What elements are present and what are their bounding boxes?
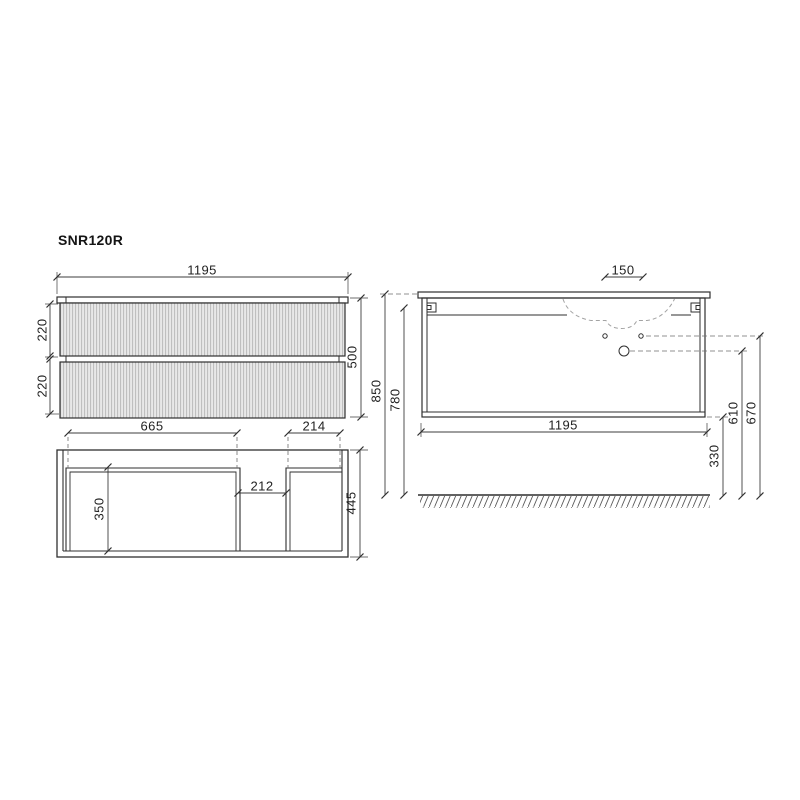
- front-view: [57, 297, 348, 418]
- side-countertop: [418, 292, 710, 298]
- dim-plan-inner-depth: 350: [93, 498, 106, 521]
- dim-front-height: 500: [346, 346, 359, 369]
- dim-front-bottom-drawer: 220: [36, 375, 49, 398]
- dim-front-width: 1195: [187, 264, 217, 277]
- drain-hole: [619, 346, 629, 356]
- mounting-bracket-right: [691, 303, 700, 312]
- side-view: [418, 292, 710, 508]
- dim-side-drain-height: 610: [727, 402, 740, 425]
- supply-hole-left: [603, 334, 607, 338]
- supply-hole-right: [639, 334, 643, 338]
- dim-plan-gap: 212: [251, 480, 274, 493]
- model-label: SNR120R: [58, 232, 123, 248]
- dim-side-tap-spacing: 150: [612, 264, 635, 277]
- dim-side-supply-height: 670: [745, 402, 758, 425]
- dim-side-cabinet-height: 780: [389, 389, 402, 412]
- technical-drawing: SNR120R 1195 220 220 500 665 214 212 350…: [0, 0, 800, 800]
- dim-plan-left-width: 665: [141, 420, 164, 433]
- plan-right-drawer: [286, 468, 342, 551]
- dim-side-counter-height: 850: [370, 380, 383, 403]
- front-top-drawer: [60, 303, 345, 356]
- dim-front-top-drawer: 220: [36, 319, 49, 342]
- front-bottom-drawer: [60, 362, 345, 418]
- basin-outline: [563, 299, 675, 329]
- plan-dimension-lines: [68, 433, 368, 557]
- mounting-bracket-left: [427, 303, 436, 312]
- side-carcass: [422, 298, 705, 417]
- dim-side-width: 1195: [548, 419, 578, 432]
- dim-plan-depth: 445: [345, 492, 358, 515]
- dim-plan-right-width: 214: [303, 420, 326, 433]
- floor-hatch: [420, 496, 710, 508]
- front-countertop: [57, 297, 348, 303]
- dim-side-clearance: 330: [708, 445, 721, 468]
- plumbing-holes: [603, 334, 643, 356]
